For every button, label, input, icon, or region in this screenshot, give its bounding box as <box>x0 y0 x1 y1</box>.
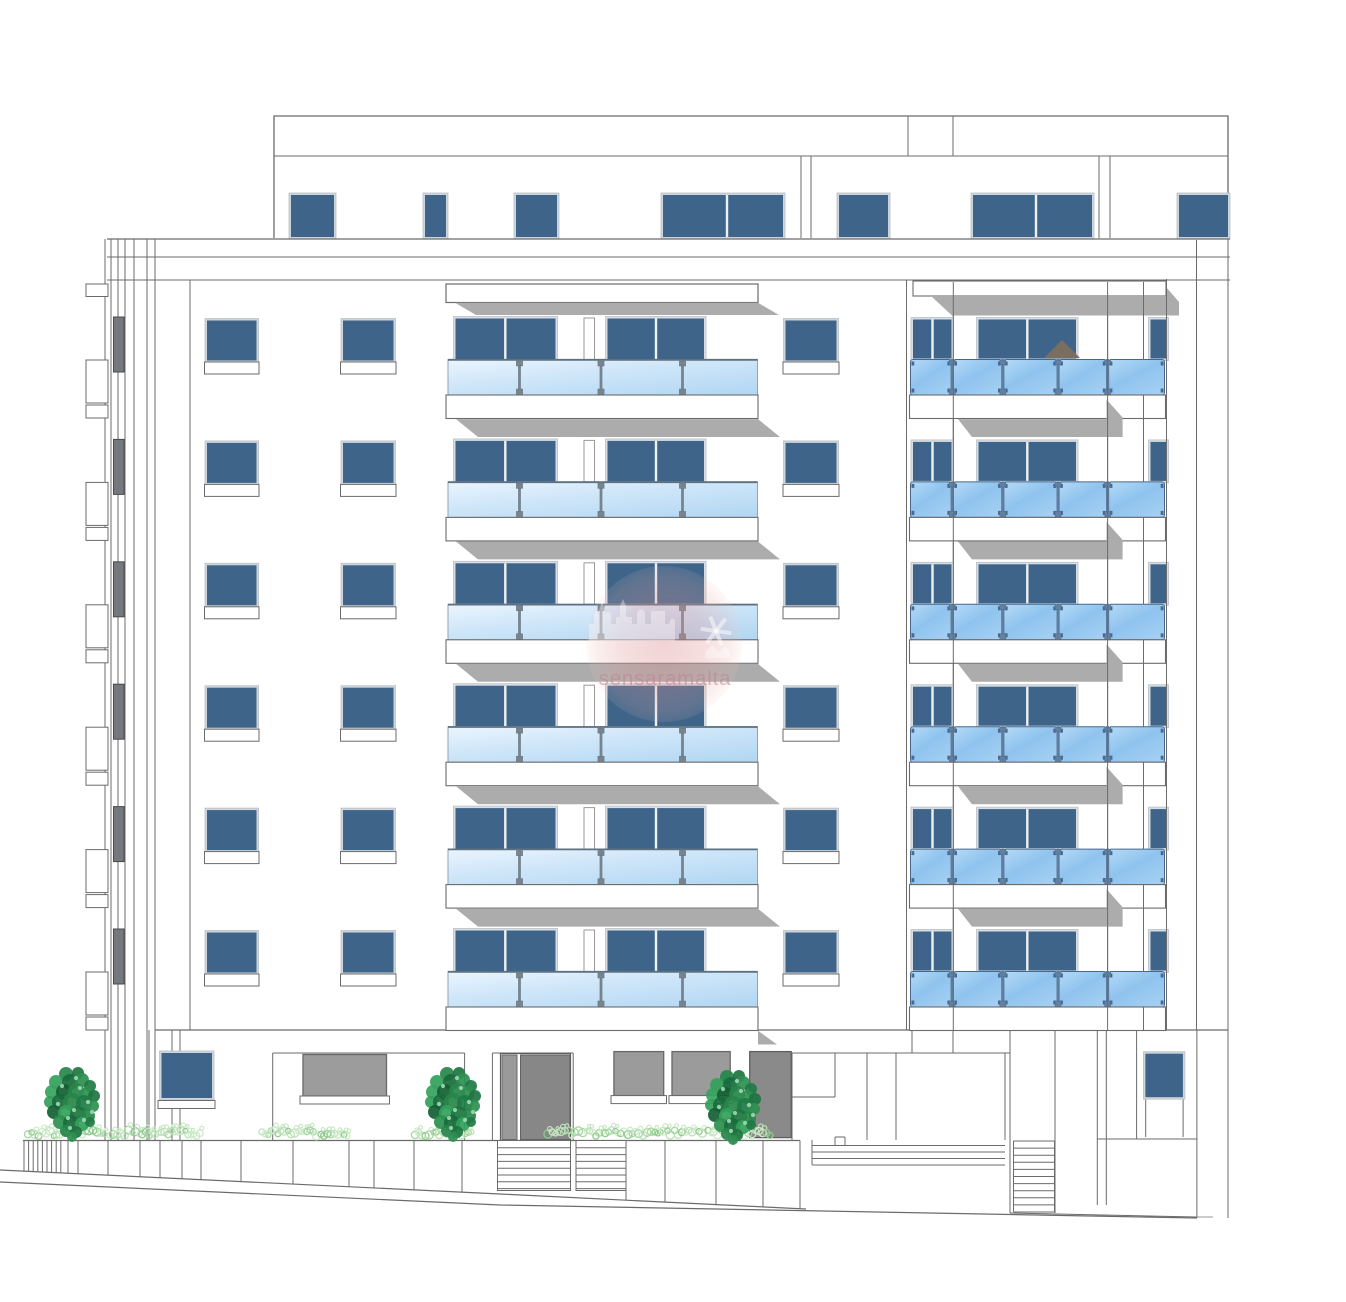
svg-text:sensaramalta: sensaramalta <box>599 667 732 690</box>
